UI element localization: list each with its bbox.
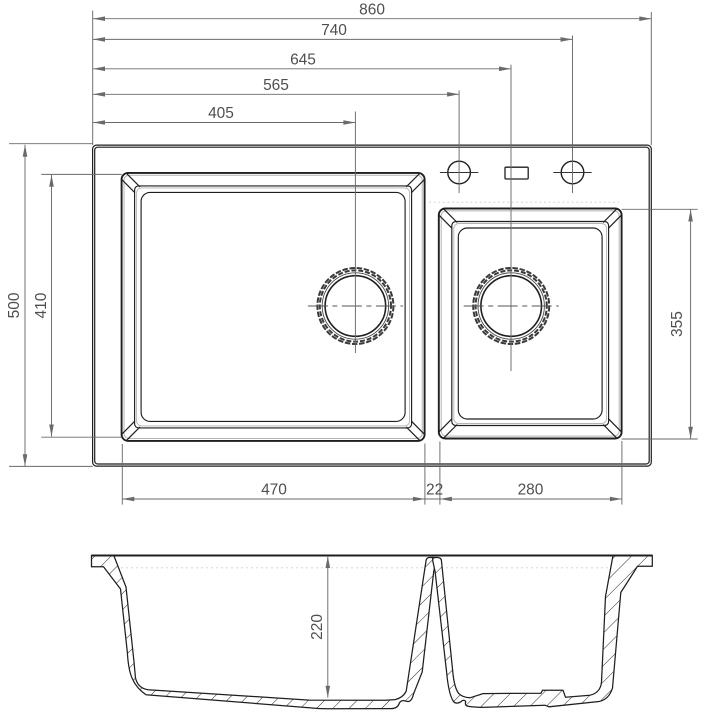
svg-text:740: 740 xyxy=(321,22,347,39)
svg-text:405: 405 xyxy=(208,105,234,122)
svg-text:470: 470 xyxy=(261,482,287,499)
svg-text:500: 500 xyxy=(6,292,23,318)
svg-text:355: 355 xyxy=(669,311,686,337)
svg-text:645: 645 xyxy=(290,52,316,69)
svg-text:410: 410 xyxy=(33,292,50,318)
svg-text:22: 22 xyxy=(426,482,443,499)
svg-text:280: 280 xyxy=(518,482,544,499)
svg-text:565: 565 xyxy=(263,77,289,94)
svg-text:220: 220 xyxy=(309,614,326,640)
svg-text:860: 860 xyxy=(359,1,385,18)
